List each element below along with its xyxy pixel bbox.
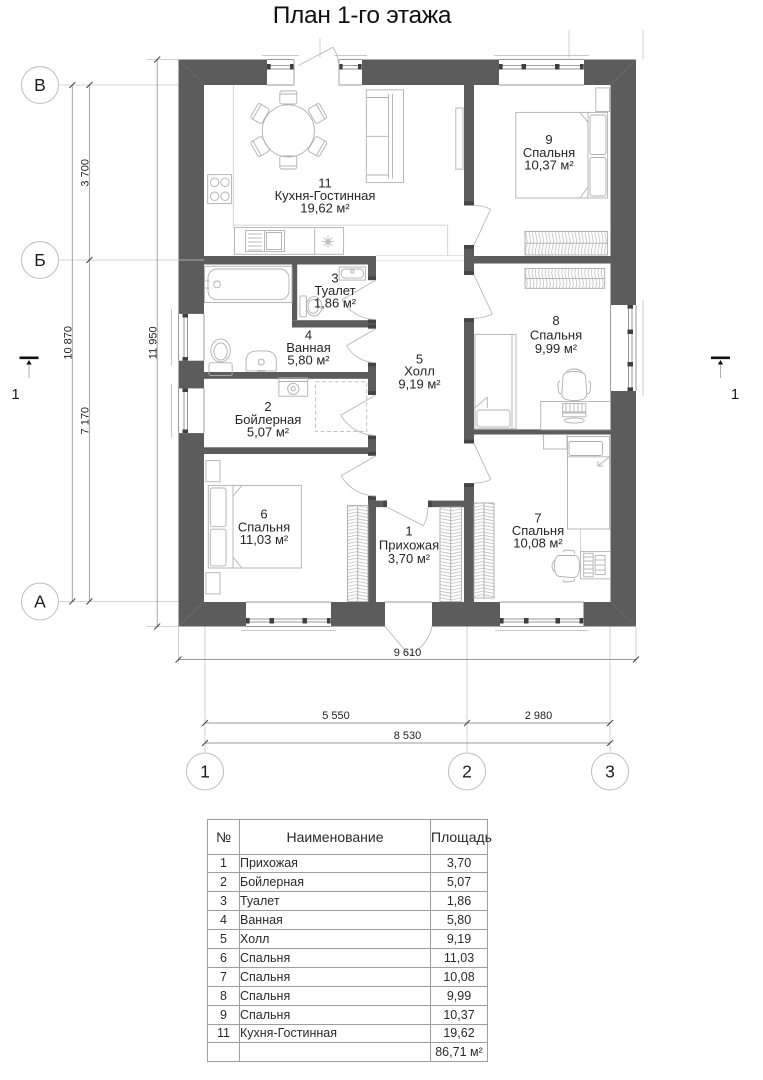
svg-text:10,08 м²: 10,08 м² bbox=[513, 536, 563, 551]
svg-text:5,80 м²: 5,80 м² bbox=[287, 353, 330, 368]
svg-text:2 980: 2 980 bbox=[525, 710, 553, 722]
svg-text:10,37 м²: 10,37 м² bbox=[524, 158, 574, 173]
svg-text:8 530: 8 530 bbox=[394, 730, 422, 742]
svg-text:11,03 м²: 11,03 м² bbox=[240, 532, 289, 547]
svg-text:2: 2 bbox=[462, 762, 472, 782]
svg-text:А: А bbox=[34, 592, 46, 612]
svg-text:Б: Б bbox=[34, 250, 45, 270]
svg-text:11 950: 11 950 bbox=[147, 326, 159, 359]
svg-text:10 870: 10 870 bbox=[63, 326, 75, 360]
svg-text:1: 1 bbox=[731, 386, 739, 403]
svg-text:1: 1 bbox=[200, 762, 210, 782]
svg-text:19,62 м²: 19,62 м² bbox=[300, 201, 350, 216]
svg-text:3,70 м²: 3,70 м² bbox=[388, 551, 431, 566]
svg-text:1,86 м²: 1,86 м² bbox=[314, 296, 357, 311]
svg-text:5,07 м²: 5,07 м² bbox=[247, 425, 290, 440]
svg-text:9 610: 9 610 bbox=[394, 647, 422, 659]
svg-text:3: 3 bbox=[605, 762, 615, 782]
svg-text:1: 1 bbox=[405, 524, 412, 539]
svg-text:3 700: 3 700 bbox=[80, 159, 92, 187]
svg-text:1: 1 bbox=[11, 386, 19, 403]
svg-text:5 550: 5 550 bbox=[322, 710, 350, 722]
svg-text:8: 8 bbox=[552, 313, 559, 328]
svg-text:7 170: 7 170 bbox=[80, 407, 92, 435]
svg-text:В: В bbox=[34, 75, 46, 95]
svg-text:9,19 м²: 9,19 м² bbox=[398, 377, 441, 392]
svg-text:9,99 м²: 9,99 м² bbox=[535, 341, 578, 356]
